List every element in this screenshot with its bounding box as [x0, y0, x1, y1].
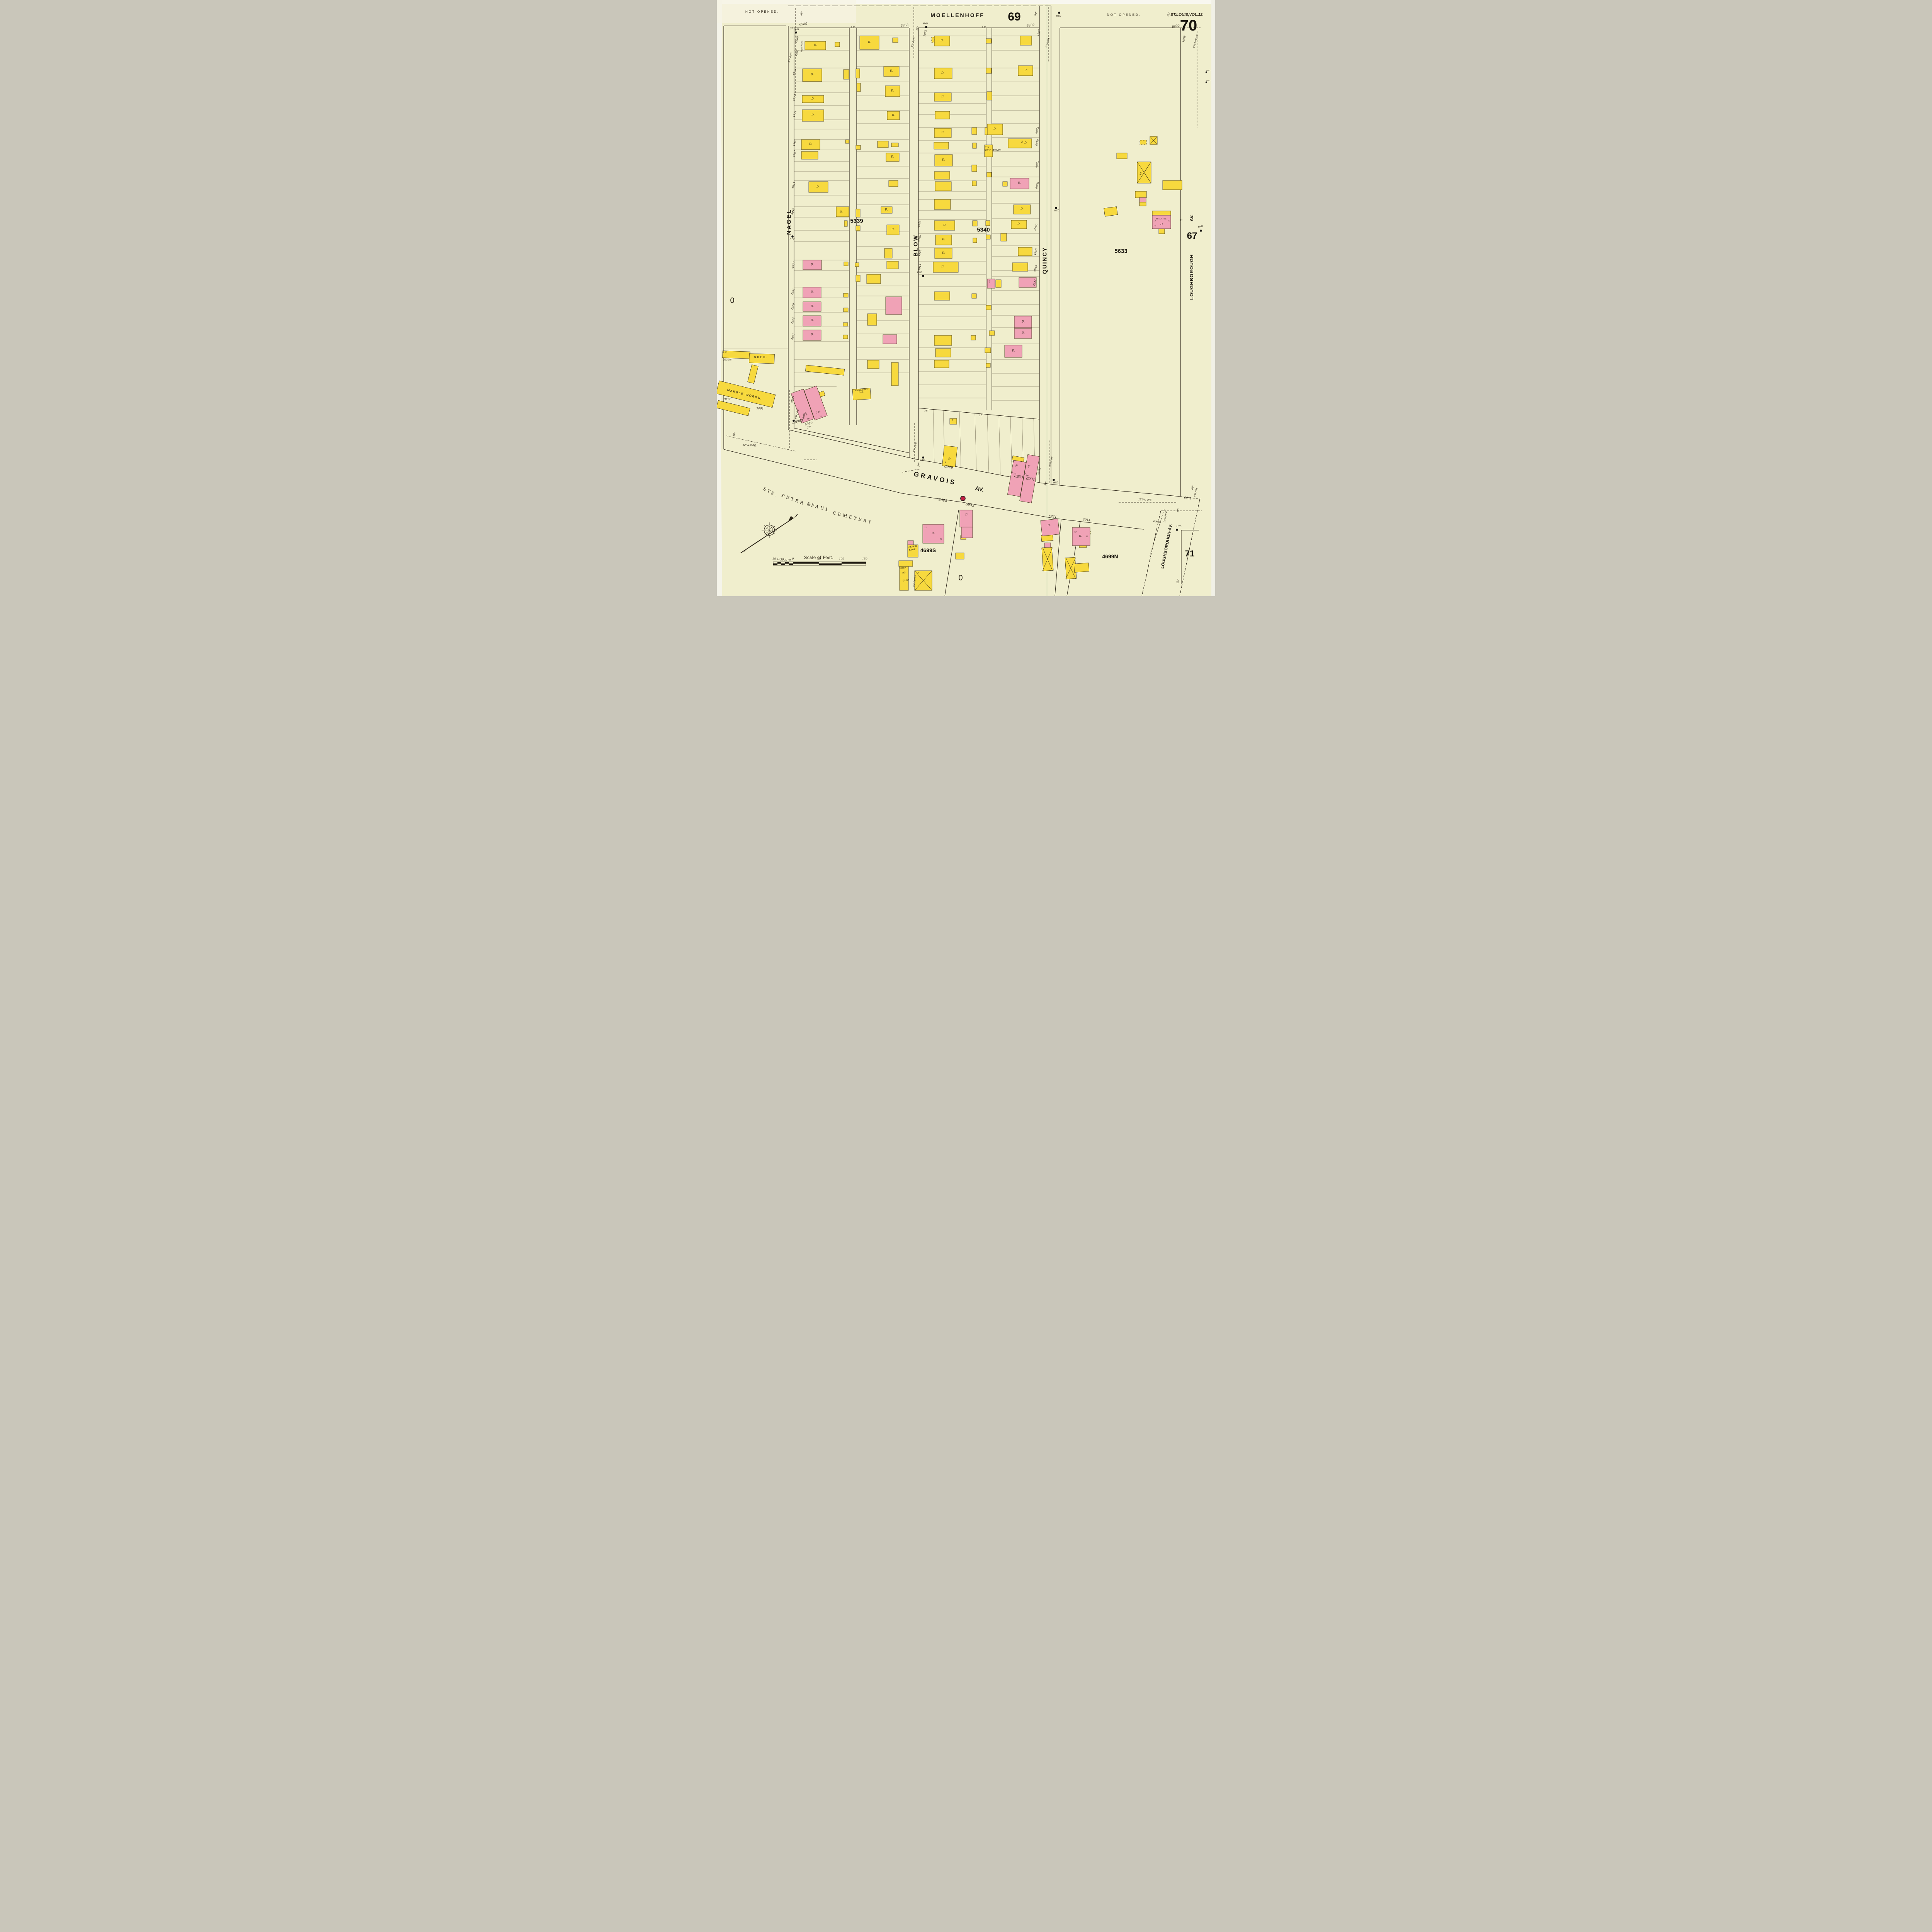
label-building-letter-187: D	[965, 514, 968, 516]
label-house-number-40: 6930	[1026, 24, 1034, 28]
label-dimension-89: 50'	[800, 11, 804, 16]
label-building-letter-153: D.	[809, 143, 812, 146]
label-building-letter-186: D.	[932, 532, 935, 535]
label-dimension-101: 80'	[733, 432, 736, 437]
label-house-number-74: 7039	[723, 398, 730, 401]
label-building-letter-203: 1	[952, 420, 953, 422]
label-note-0: NOT OPENED.	[745, 10, 779, 14]
label-house-number-56: 4909	[791, 396, 795, 403]
label-house-number-44: 4979	[793, 68, 797, 76]
label-utility-114: HYD.	[920, 459, 926, 462]
label-dimension-100: 25'	[807, 426, 811, 429]
label-house-number-77: 6948	[938, 498, 947, 503]
label-building-letter-140: HO.	[902, 572, 906, 574]
label-note-143: SHED.	[754, 356, 768, 359]
label-note-21: STS.	[762, 486, 779, 498]
label-building-letter-195: 2	[1012, 471, 1014, 473]
label-building-letter-184: D.	[1022, 332, 1025, 335]
label-building-letter-178: D.	[993, 128, 997, 131]
label-utility-125: 6"W.PIPE 60'	[1193, 34, 1199, 48]
label-note-24: PAUL	[811, 503, 831, 513]
label-street-name-15: LOUGHBOROUGH-AV.	[1160, 524, 1173, 569]
label-building-letter-200: 2	[989, 281, 990, 283]
label-house-number-67: 4970	[1035, 160, 1039, 168]
label-building-letter-164: D.	[892, 114, 895, 117]
label-house-number-39: 6958	[901, 24, 909, 27]
label-building-letter-199: 2	[917, 572, 918, 575]
label-building-letter-169: D.	[941, 72, 944, 75]
label-house-number-71: 4944	[1033, 279, 1037, 286]
label-house-number-84: 6900	[1153, 520, 1161, 524]
label-building-letter-181: D.	[1020, 208, 1024, 211]
label-utility-118: HYD	[1198, 225, 1203, 228]
label-note-1: NOT OPENED.	[1107, 14, 1141, 17]
label-dimension-28: 40	[777, 558, 781, 561]
label-dimension-204: 12	[924, 527, 927, 529]
label-dimension-106: 26'	[820, 415, 823, 418]
label-building-letter-170: D.	[941, 95, 944, 98]
label-utility-115: HYD	[1056, 15, 1061, 17]
label-building-letter-197: 2	[1021, 141, 1023, 144]
label-note-36: 0	[730, 297, 734, 304]
label-house-number-76: 6949	[944, 465, 953, 470]
label-building-letter-175: D.	[942, 252, 945, 255]
label-dimension-98: 15'	[979, 414, 983, 417]
label-house-number-38: 6980	[799, 22, 808, 26]
label-building-letter-198: 2	[1139, 172, 1141, 175]
label-building-letter-183: D.	[1022, 321, 1025, 323]
label-utility-126: 6"W.PIPE	[795, 409, 800, 420]
label-utility-119: HYD	[1206, 70, 1210, 72]
label-building-letter-136: SHOP	[985, 150, 991, 152]
label-building-letter-190: D.	[1160, 223, 1164, 226]
label-building-letter-150: D.	[811, 73, 814, 76]
label-dimension-34: 100	[839, 558, 844, 561]
label-building-letter-179: D.	[1024, 142, 1027, 145]
label-dimension-94: 50'	[1044, 481, 1048, 486]
label-building-letter-167: D.	[891, 228, 895, 231]
label-utility-129: 6"W.PIPE	[1194, 488, 1199, 497]
label-dimension-91: 50'	[916, 26, 920, 31]
label-building-letter-174: D.	[942, 238, 945, 241]
label-building-letter-156: D.	[811, 264, 814, 266]
label-house-number-69: 4950	[1034, 248, 1038, 255]
label-building-letter-182: D.	[1017, 223, 1020, 226]
label-building-letter-165: D.	[891, 156, 894, 158]
label-dimension-206: 12	[1153, 221, 1156, 223]
label-building-letter-192: 2	[945, 461, 947, 464]
label-building-letter-148: R.	[1180, 218, 1183, 221]
label-block-number-17: 5340	[977, 227, 990, 233]
label-street-name-7: MOELLENHOFF	[930, 12, 985, 18]
label-house-number-87: 1995	[1037, 29, 1041, 37]
label-block-number-20: 4699N	[1102, 554, 1118, 559]
label-dimension-96: 15'	[982, 26, 986, 29]
label-utility-112: HYD	[923, 23, 928, 25]
label-house-number-54: 4925	[791, 317, 795, 324]
label-house-number-60: 4951	[917, 220, 922, 228]
label-building-letter-185: D.	[1012, 350, 1015, 352]
label-building-letter-158: D.	[811, 305, 814, 308]
label-building-letter-163: D.	[891, 90, 894, 92]
label-dimension-205: 12	[940, 539, 942, 541]
label-dimension-90: 50'	[1034, 12, 1038, 17]
label-building-letter-191: S'	[948, 457, 951, 461]
label-house-number-42: 4989	[795, 36, 799, 43]
label-house-number-85: 6901	[1184, 496, 1192, 500]
map-label-layer: NOT OPENED.NOT OPENED.ST.LOUIS,VOL.12.70…	[717, 0, 1215, 596]
label-dimension-208: 1½	[1153, 226, 1156, 228]
label-house-number-47: 4965	[793, 139, 797, 146]
label-building-letter-138: SHOP	[909, 549, 915, 551]
label-building-letter-147: 2 D.	[723, 351, 727, 354]
label-building-letter-201: 2 S.	[804, 413, 809, 417]
label-house-number-65: 4978	[1035, 126, 1039, 134]
label-street-name-12: LOUGHBOROUGH	[1189, 254, 1194, 300]
label-utility-128: 6"W.PIPE	[1049, 457, 1054, 467]
label-house-number-64: (4952)	[1034, 223, 1038, 231]
label-building-letter-172: D.	[942, 159, 945, 162]
label-building-letter-161: D.	[868, 41, 871, 44]
label-building-letter-157: D.	[811, 291, 814, 294]
label-dimension-105: 26'	[807, 418, 811, 420]
label-dimension-209: 1½	[1011, 461, 1014, 463]
label-dimension-103: 60'	[1176, 579, 1180, 583]
label-note-133: From Plans.	[801, 41, 803, 52]
label-building-letter-171: D.	[941, 131, 944, 134]
sanborn-map-sheet: NOT OPENED.NOT OPENED.ST.LOUIS,VOL.12.70…	[717, 0, 1215, 596]
label-building-letter-154: D.	[816, 186, 820, 189]
label-dimension-211: 12	[1086, 536, 1088, 538]
label-house-number-72: 4974½	[993, 149, 1002, 152]
label-dimension-97: 15'	[924, 410, 928, 413]
label-building-letter-151: D.	[811, 98, 815, 100]
label-house-number-68: 4966	[1035, 182, 1039, 189]
label-building-letter-155: D.	[840, 211, 843, 214]
label-dimension-102: 80'	[1177, 508, 1180, 512]
label-street-name-10: QUINCY	[1042, 247, 1048, 274]
label-house-number-61: 4949	[917, 235, 922, 242]
label-street-name-11: AV.	[1189, 214, 1194, 221]
label-building-letter-196: 2	[1024, 473, 1026, 476]
label-house-number-70: 4948	[1034, 265, 1038, 272]
label-dimension-108: 26'	[1026, 475, 1029, 477]
label-building-letter-137: REPAIR	[908, 546, 917, 549]
label-utility-120: HYD	[1206, 80, 1210, 82]
label-house-number-55: 4921	[791, 333, 795, 340]
label-house-number-82: 6924	[1048, 515, 1056, 519]
label-building-letter-168: D.	[940, 39, 944, 42]
label-block-number-16: 5339	[850, 218, 863, 224]
label-block-number-18: 5633	[1114, 248, 1127, 254]
label-note-2: ST.LOUIS,VOL.12.	[1170, 13, 1203, 17]
label-house-number-63: 4943	[918, 264, 922, 271]
label-dimension-104: 60'	[1191, 485, 1195, 490]
label-utility-132: 12"W.PIPE	[1163, 511, 1168, 523]
label-street-name-14: AV.	[975, 485, 984, 493]
label-dimension-30: 20	[784, 559, 787, 562]
label-dimension-31: 10	[787, 559, 791, 562]
label-house-number-49: 4955	[792, 182, 796, 189]
label-dimension-142: 40' LONG.	[913, 575, 917, 587]
label-utility-111: HYD.	[793, 423, 798, 425]
label-house-number-83: 6914	[1083, 518, 1091, 522]
label-house-number-86: 1995	[923, 30, 928, 37]
label-building-letter-166: D.	[885, 209, 888, 211]
label-utility-127: 6"W.PIPE	[913, 442, 918, 453]
label-dimension-27: 50	[773, 558, 776, 561]
label-house-number-81: 4900	[1037, 467, 1041, 474]
label-building-letter-194: S'	[1027, 465, 1031, 468]
label-house-number-48: 4963	[793, 150, 797, 157]
label-utility-131: 12"W.PIPE	[1138, 498, 1152, 502]
label-house-number-43: 4985	[795, 49, 799, 56]
label-house-number-50: 4949	[791, 207, 795, 215]
label-house-number-79: 6933	[1014, 475, 1023, 480]
label-house-number-62: 4945	[918, 249, 922, 257]
label-building-letter-189: D.	[1079, 535, 1082, 538]
label-note-37: 0	[958, 574, 963, 582]
label-house-number-75: 7001	[756, 407, 764, 410]
label-building-letter-177: D.	[1024, 69, 1027, 72]
label-dimension-210: 12	[1074, 532, 1077, 534]
label-utility-113: HYD	[917, 272, 922, 274]
label-page-number-3: 70	[1180, 18, 1197, 33]
label-block-number-19: 4699S	[920, 548, 936, 553]
label-street-name-13: GRAVOIS	[913, 471, 957, 486]
label-house-number-52: 4931	[791, 288, 795, 295]
label-page-number-6: 71	[1185, 549, 1194, 558]
label-dimension-107: 26'	[1013, 473, 1016, 475]
label-dimension-95: 15'	[851, 26, 855, 29]
label-page-number-5: 67	[1187, 231, 1197, 241]
label-utility-109: HYD	[794, 29, 799, 31]
label-house-number-53: 4929	[791, 303, 795, 310]
label-building-letter-176: D.	[941, 265, 944, 268]
label-note-25: CEMETERY	[832, 511, 873, 525]
label-utility-117: HYD.	[1053, 482, 1059, 484]
label-building-letter-180: D.	[1018, 182, 1021, 185]
label-house-number-80: 6931	[1026, 477, 1035, 482]
label-building-letter-146: GAR.	[859, 392, 864, 394]
label-building-letter-160: D.	[811, 333, 814, 336]
label-building-letter-152: D.	[811, 114, 815, 117]
label-dimension-93: 50'	[917, 463, 921, 467]
label-house-number-88: 1998	[1182, 35, 1186, 43]
label-utility-121: HYD.	[1177, 526, 1182, 528]
label-note-22: PETER	[781, 493, 806, 506]
label-building-letter-134: BUILT 1867	[1156, 218, 1167, 220]
label-house-number-46: 4971	[793, 110, 797, 117]
label-dimension-33: 50	[818, 558, 821, 561]
label-dimension-207: 12	[1168, 221, 1170, 223]
label-building-letter-173: D.	[943, 224, 946, 227]
label-building-letter-188: D.	[1048, 524, 1051, 527]
label-building-letter-141: GL.RF.	[903, 580, 909, 582]
label-page-number-4: 69	[1008, 11, 1020, 23]
label-utility-116: HYD	[1054, 210, 1060, 212]
label-house-number-51: 4937	[791, 261, 796, 269]
label-building-letter-193: F'	[1015, 464, 1018, 468]
label-building-letter-159: D.	[811, 319, 814, 322]
label-house-number-66: 4974	[1035, 139, 1039, 146]
label-building-letter-202: 2 S.	[816, 410, 821, 414]
label-note-23: &	[806, 502, 811, 507]
label-dimension-32: 0	[792, 558, 794, 561]
label-dimension-29: 30	[781, 559, 784, 561]
label-building-letter-162: D.	[890, 70, 893, 73]
label-dimension-35: 150	[862, 558, 867, 561]
label-utility-130: 12"W.PIPE.	[743, 444, 757, 447]
label-house-number-78: 6942	[965, 503, 975, 508]
label-utility-110: HYD	[790, 238, 795, 240]
label-utility-122: 6"W.PIPE	[788, 53, 793, 63]
label-note-144: MARBLE WORKS.	[727, 389, 763, 400]
label-house-number-73: 7039½	[723, 359, 732, 361]
label-building-letter-135: TIN	[985, 146, 990, 149]
label-house-number-41: 6900	[1172, 24, 1180, 29]
label-utility-124: 6"W.PIPE	[1046, 37, 1051, 48]
label-utility-123: 6"W.PIPE	[911, 37, 916, 48]
label-house-number-45: 4973	[793, 94, 797, 101]
label-building-letter-149: D.	[814, 44, 817, 47]
label-building-letter-139: GREEN	[899, 567, 906, 570]
